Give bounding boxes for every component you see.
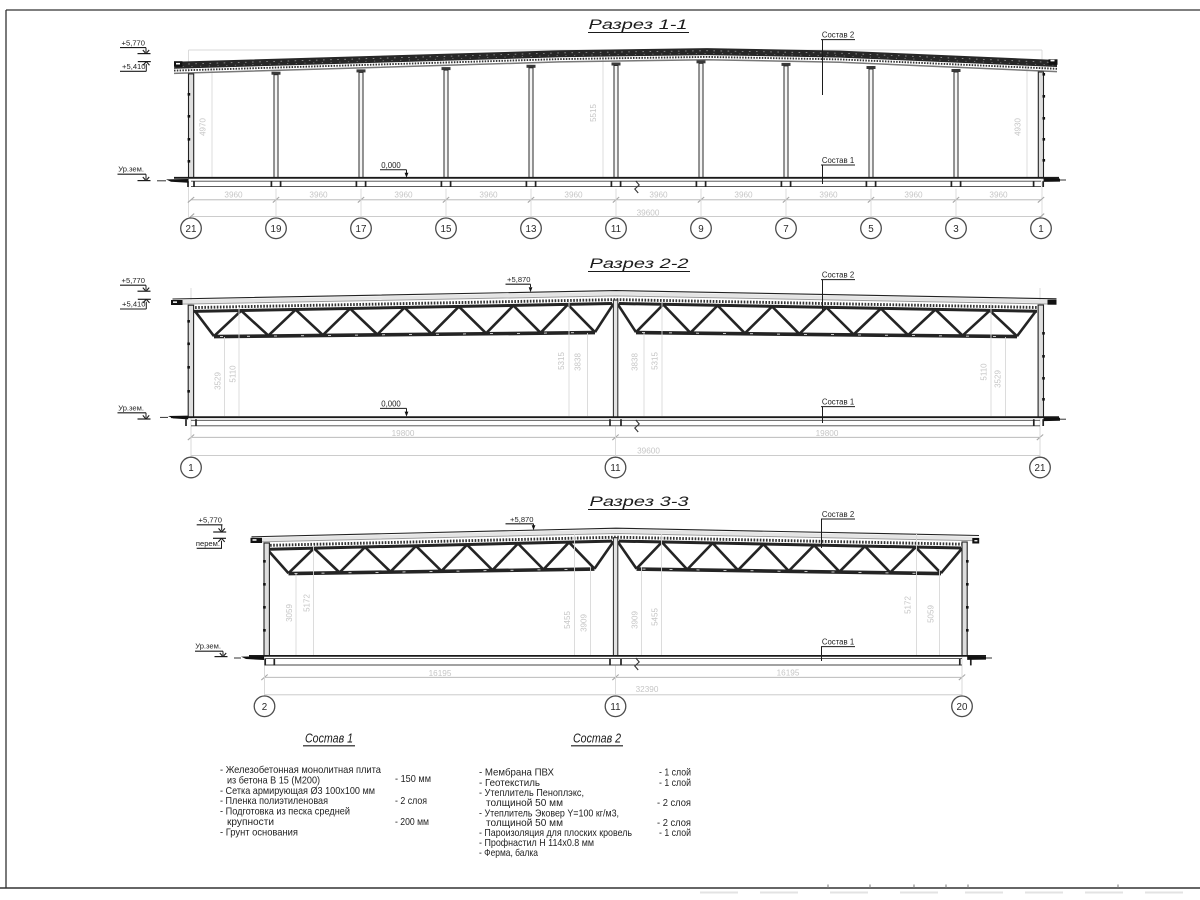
svg-text:4970: 4970 bbox=[199, 118, 208, 136]
svg-text:- Сетка армирующая Ø3 100х100: - Сетка армирующая Ø3 100х100 мм bbox=[220, 786, 375, 797]
svg-text:- Пленка полиэтиленовая: - Пленка полиэтиленовая bbox=[220, 796, 328, 807]
svg-text:Состав 1: Состав 1 bbox=[822, 637, 854, 646]
svg-text:3960: 3960 bbox=[819, 191, 838, 200]
svg-text:+5,410: +5,410 bbox=[122, 300, 145, 309]
svg-text:5172: 5172 bbox=[904, 596, 913, 614]
svg-text:3: 3 bbox=[953, 224, 959, 235]
svg-text:3960: 3960 bbox=[734, 191, 753, 200]
svg-text:Ур.зем.: Ур.зем. bbox=[118, 403, 144, 412]
svg-text:3529: 3529 bbox=[214, 372, 223, 390]
svg-text:Ур.зем.: Ур.зем. bbox=[118, 165, 144, 174]
svg-text:16195: 16195 bbox=[777, 669, 800, 678]
svg-text:0,000: 0,000 bbox=[381, 161, 401, 170]
svg-text:13: 13 bbox=[526, 224, 537, 235]
svg-text:20: 20 bbox=[957, 702, 968, 713]
svg-text:15: 15 bbox=[441, 224, 452, 235]
svg-text:3960: 3960 bbox=[989, 191, 1008, 200]
svg-text:5172: 5172 bbox=[303, 594, 312, 612]
svg-text:- Мембрана ПВХ: - Мембрана ПВХ bbox=[479, 767, 554, 779]
svg-text:5110: 5110 bbox=[980, 363, 989, 381]
svg-text:Ур.зем.: Ур.зем. bbox=[195, 642, 221, 651]
svg-text:1: 1 bbox=[188, 463, 193, 474]
svg-text:перем.: перем. bbox=[196, 539, 220, 548]
svg-text:Состав 2: Состав 2 bbox=[822, 30, 854, 39]
svg-text:3960: 3960 bbox=[649, 191, 668, 200]
svg-text:7: 7 bbox=[783, 224, 788, 235]
svg-text:3960: 3960 bbox=[479, 191, 498, 200]
svg-text:Разрез 2-2: Разрез 2-2 bbox=[590, 256, 689, 272]
svg-text:- 2 слоя: - 2 слоя bbox=[395, 796, 427, 807]
svg-text:17: 17 bbox=[356, 224, 367, 235]
svg-text:3960: 3960 bbox=[904, 191, 923, 200]
svg-text:3960: 3960 bbox=[309, 191, 328, 200]
svg-text:21: 21 bbox=[1035, 463, 1046, 474]
svg-text:+5,770: +5,770 bbox=[122, 38, 145, 47]
svg-text:16195: 16195 bbox=[429, 669, 452, 678]
svg-text:19800: 19800 bbox=[816, 429, 839, 438]
svg-text:+5,770: +5,770 bbox=[122, 276, 145, 285]
svg-text:9: 9 bbox=[698, 224, 703, 235]
svg-text:5455: 5455 bbox=[651, 608, 660, 626]
svg-text:- Грунт основания: - Грунт основания bbox=[220, 827, 298, 838]
svg-text:Состав 2: Состав 2 bbox=[822, 510, 854, 519]
svg-text:11: 11 bbox=[610, 702, 620, 713]
svg-text:5110: 5110 bbox=[229, 365, 238, 383]
svg-text:0,000: 0,000 bbox=[381, 399, 401, 408]
svg-text:11: 11 bbox=[610, 463, 620, 474]
svg-text:3960: 3960 bbox=[564, 191, 583, 200]
svg-text:Разрез 3-3: Разрез 3-3 bbox=[590, 494, 689, 510]
svg-text:+5,770: +5,770 bbox=[199, 516, 222, 525]
svg-text:39600: 39600 bbox=[637, 208, 660, 217]
svg-text:- Подготовка из песка средней: - Подготовка из песка средней bbox=[220, 807, 350, 818]
svg-text:крупности: крупности bbox=[227, 817, 274, 828]
svg-text:+5,410: +5,410 bbox=[122, 62, 145, 71]
svg-text:5315: 5315 bbox=[651, 352, 660, 370]
svg-text:19: 19 bbox=[271, 224, 282, 235]
svg-text:Состав 2: Состав 2 bbox=[822, 270, 854, 279]
svg-text:Разрез 1-1: Разрез 1-1 bbox=[589, 17, 688, 33]
svg-text:5315: 5315 bbox=[557, 352, 566, 370]
svg-text:3838: 3838 bbox=[631, 353, 640, 371]
svg-text:+5,870: +5,870 bbox=[507, 275, 530, 284]
svg-text:- 2 слоя: - 2 слоя bbox=[657, 798, 691, 809]
svg-text:3960: 3960 bbox=[224, 191, 243, 200]
svg-text:Состав 1: Состав 1 bbox=[822, 156, 854, 165]
svg-text:- 150 мм: - 150 мм bbox=[395, 774, 431, 785]
svg-text:Состав 1: Состав 1 bbox=[822, 397, 854, 406]
svg-text:- Ферма, балка: - Ферма, балка bbox=[479, 847, 538, 859]
svg-text:39600: 39600 bbox=[637, 446, 660, 455]
svg-text:3960: 3960 bbox=[394, 191, 413, 200]
svg-text:3909: 3909 bbox=[580, 614, 589, 632]
svg-text:3529: 3529 bbox=[994, 370, 1003, 388]
svg-text:5: 5 bbox=[868, 224, 874, 235]
svg-text:5515: 5515 bbox=[589, 104, 598, 122]
svg-text:из бетона В 15 (М200): из бетона В 15 (М200) bbox=[227, 774, 320, 786]
svg-text:5059: 5059 bbox=[927, 605, 936, 623]
svg-text:+5,870: +5,870 bbox=[510, 515, 533, 524]
svg-text:3059: 3059 bbox=[285, 604, 294, 622]
svg-text:Состав 2: Состав 2 bbox=[573, 732, 621, 746]
svg-text:32390: 32390 bbox=[636, 685, 659, 694]
svg-text:2: 2 bbox=[262, 702, 267, 713]
svg-text:5455: 5455 bbox=[563, 611, 572, 629]
svg-text:- 1 слой: - 1 слой bbox=[659, 778, 691, 789]
svg-text:- 1 слой: - 1 слой bbox=[659, 828, 691, 839]
svg-text:Состав 1: Состав 1 bbox=[305, 732, 353, 746]
svg-text:1: 1 bbox=[1038, 224, 1043, 235]
svg-text:- 200 мм: - 200 мм bbox=[395, 817, 429, 828]
svg-text:4930: 4930 bbox=[1014, 118, 1023, 136]
svg-text:21: 21 bbox=[186, 224, 197, 235]
svg-text:19800: 19800 bbox=[392, 429, 415, 438]
svg-text:- Железобетонная монолитная п: - Железобетонная монолитная плита bbox=[220, 764, 381, 776]
svg-text:11: 11 bbox=[611, 224, 621, 235]
svg-text:3909: 3909 bbox=[631, 611, 640, 629]
svg-text:3838: 3838 bbox=[574, 353, 583, 371]
